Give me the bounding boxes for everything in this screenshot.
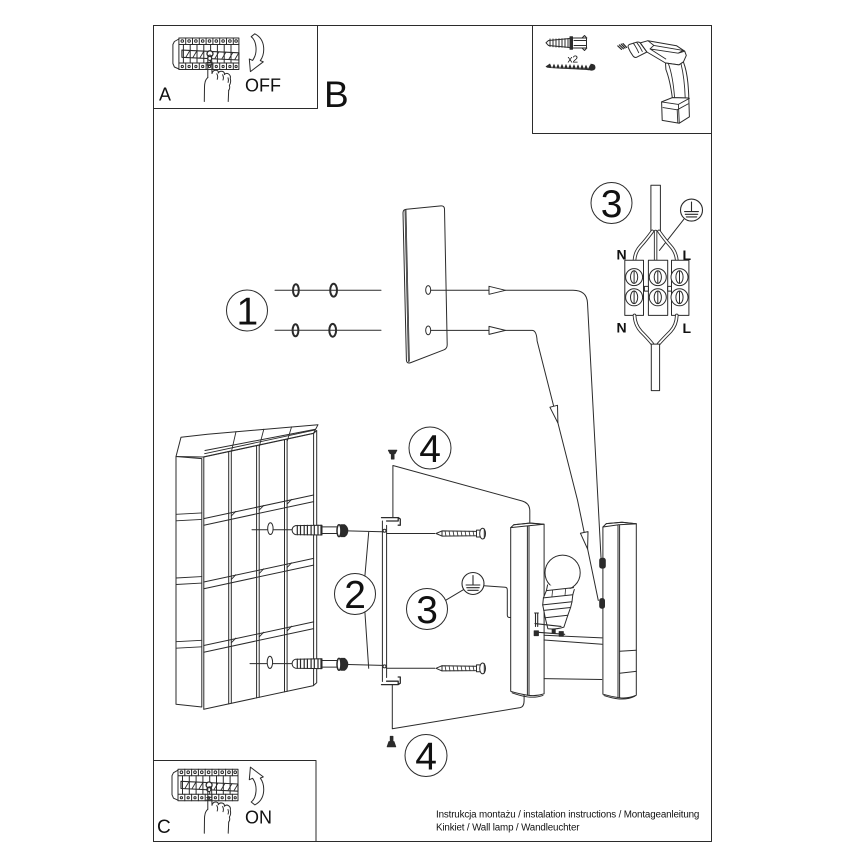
svg-text:x2: x2 — [568, 55, 579, 66]
svg-text:2: 2 — [344, 574, 366, 617]
svg-text:Instrukcja montażu / instalati: Instrukcja montażu / instalation instruc… — [436, 810, 699, 821]
svg-text:OFF: OFF — [245, 76, 281, 96]
svg-text:N: N — [617, 320, 627, 336]
svg-text:3: 3 — [601, 183, 623, 226]
svg-text:B: B — [324, 74, 349, 115]
svg-text:L: L — [683, 320, 692, 336]
svg-text:4: 4 — [419, 428, 441, 471]
svg-text:C: C — [157, 817, 171, 838]
svg-text:4: 4 — [415, 736, 437, 779]
svg-text:ON: ON — [245, 808, 272, 828]
svg-text:Kinkiet / Wall lamp / Wandleuc: Kinkiet / Wall lamp / Wandleuchter — [436, 823, 580, 834]
svg-text:A: A — [159, 85, 171, 105]
svg-text:3: 3 — [416, 589, 438, 632]
svg-text:1: 1 — [237, 291, 259, 334]
